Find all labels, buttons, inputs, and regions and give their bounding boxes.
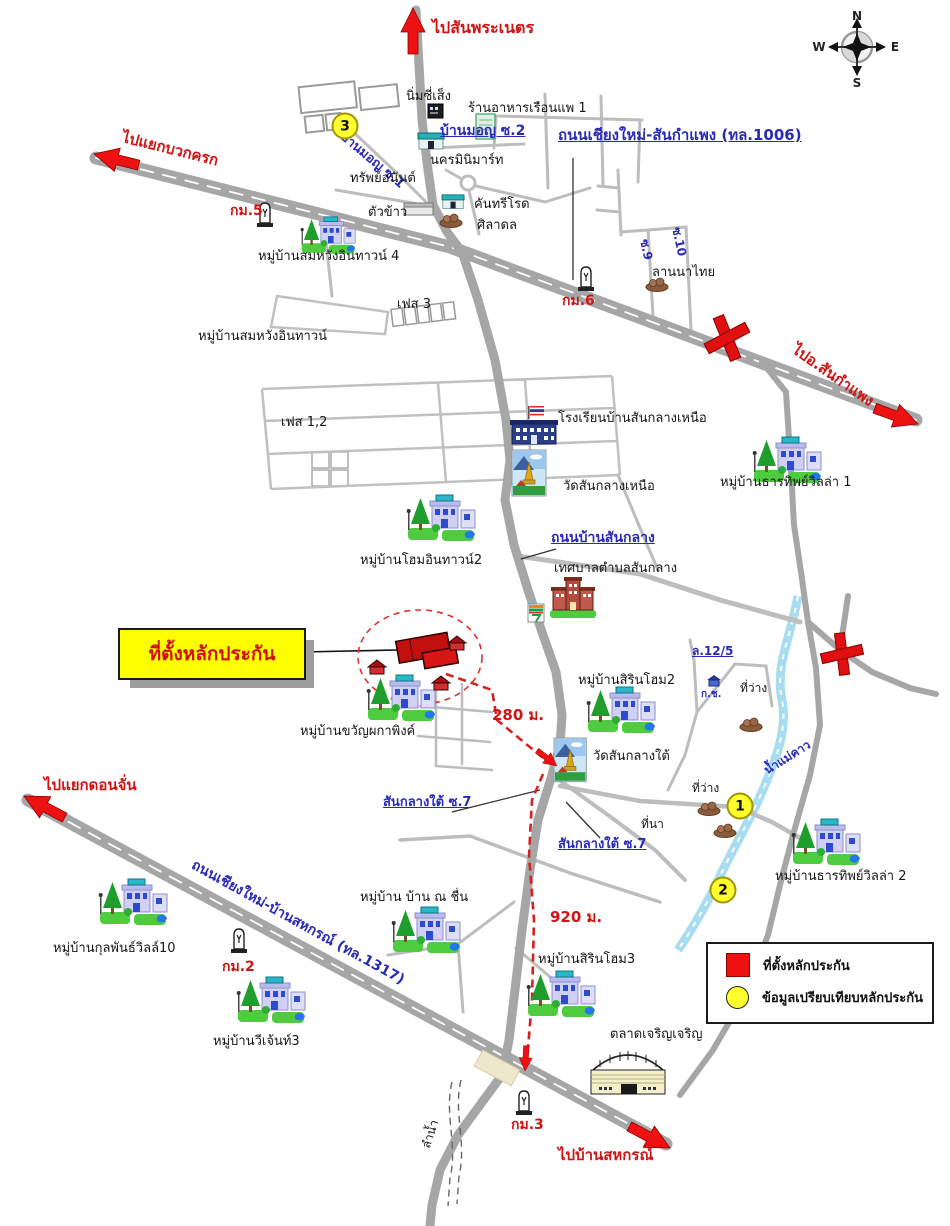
seven-eleven-icon bbox=[528, 604, 544, 622]
collateral-callout: ที่ตั้งหลักประกัน bbox=[118, 628, 306, 680]
km2-marker-icon bbox=[231, 929, 247, 953]
country-road-icon bbox=[442, 195, 464, 209]
major-roads bbox=[28, 10, 936, 1226]
v-gent3-village-icon bbox=[237, 977, 305, 1023]
map-drawing: N E S W bbox=[0, 0, 950, 1226]
nim-si-seng-icon bbox=[428, 104, 443, 118]
compass-n: N bbox=[852, 9, 862, 23]
wat-nuea-icon bbox=[512, 450, 546, 496]
house-sign-icon bbox=[476, 114, 495, 139]
legend-yellow-circle-icon bbox=[726, 986, 749, 1009]
minimart-icon bbox=[418, 133, 444, 149]
thantip1-village-icon bbox=[753, 437, 821, 483]
market-icon bbox=[591, 1051, 665, 1094]
small-house-icon bbox=[448, 636, 466, 650]
wat-tai-icon bbox=[554, 738, 586, 782]
kulpan10-village-icon bbox=[99, 879, 167, 925]
compass-s: S bbox=[853, 76, 862, 90]
thantip2-village-icon bbox=[792, 819, 860, 865]
home-intown2-village-icon bbox=[407, 495, 475, 541]
collateral-building bbox=[396, 631, 459, 673]
tua-khao-icon bbox=[404, 203, 433, 215]
small-house-icon bbox=[368, 660, 386, 674]
arrow-east-sahakorn bbox=[624, 1116, 676, 1159]
collateral-callout-label: ที่ตั้งหลักประกัน bbox=[149, 639, 276, 669]
arrow-west-donchan bbox=[18, 785, 70, 828]
map-canvas: N E S W ไปสันพระเนตรนิ่มซี่เส็งร้านอาหาร… bbox=[0, 0, 950, 1226]
dirt-mound-icon bbox=[714, 824, 736, 838]
khwan-village-icon bbox=[367, 675, 435, 721]
legend-label-collateral: ที่ตั้งหลักประกัน bbox=[763, 955, 850, 976]
sirin2-village-icon bbox=[587, 687, 655, 733]
legend-red-square-icon bbox=[726, 953, 750, 977]
legend: ที่ตั้งหลักประกัน ข้อมูลเปรียบเทียบหลักป… bbox=[706, 942, 934, 1024]
compass-e: E bbox=[891, 40, 899, 54]
km6-marker-icon bbox=[578, 267, 594, 291]
compass-w: W bbox=[812, 40, 825, 54]
legend-row-collateral: ที่ตั้งหลักประกัน bbox=[726, 953, 932, 977]
legend-row-comparison: ข้อมูลเปรียบเทียบหลักประกัน bbox=[726, 986, 932, 1009]
km3-marker-icon bbox=[516, 1091, 532, 1115]
dirt-mound-icon bbox=[740, 718, 762, 732]
municipality-icon bbox=[550, 577, 596, 618]
na-chuen-village-icon bbox=[392, 907, 460, 953]
small-house-icon bbox=[707, 675, 721, 686]
sirin3-village-icon bbox=[527, 971, 595, 1017]
small-house-icon bbox=[432, 676, 450, 690]
lanna-thai-icon bbox=[646, 278, 668, 292]
compass-rose: N E S W bbox=[812, 9, 899, 90]
legend-label-comparison: ข้อมูลเปรียบเทียบหลักประกัน bbox=[762, 987, 923, 1008]
